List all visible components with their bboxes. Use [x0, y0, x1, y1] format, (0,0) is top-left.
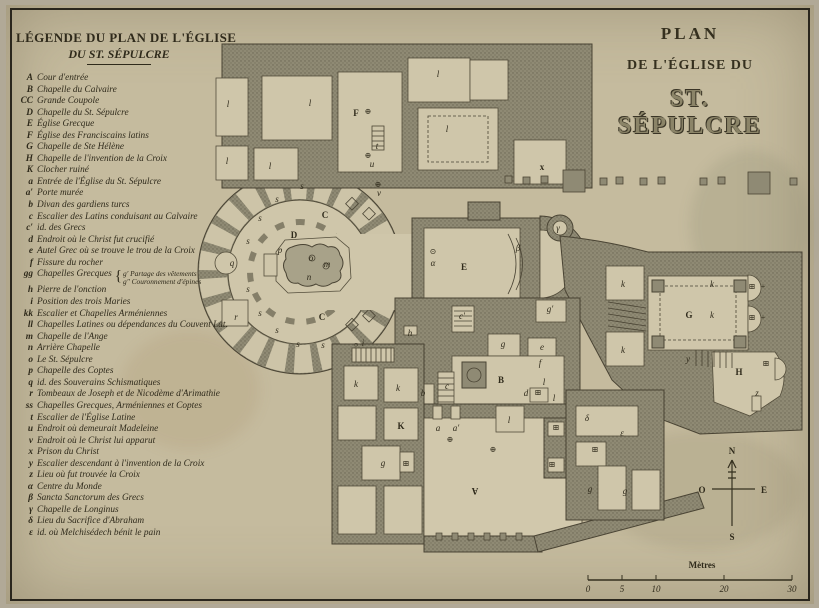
- legend-entry: a′ Porte murée: [16, 188, 222, 200]
- legend-entry-key: p: [16, 366, 33, 378]
- plan-label-s: s: [275, 194, 279, 204]
- legend-entry: p Chapelle des Coptes: [16, 366, 222, 378]
- compass-rose: N S O E: [698, 446, 767, 542]
- legend-entry: h Pierre de l'onction: [16, 285, 222, 297]
- scale-tick-label: 30: [787, 584, 798, 594]
- engraved-plan-page: ABCCDEFGHKxlllllllllsssssssssqrpomntuvhi…: [0, 0, 819, 608]
- plan-label-g: g: [381, 458, 386, 468]
- legend-entry-key: o: [16, 355, 33, 367]
- map-title-line2: DE L'ÉGLISE DU: [600, 58, 780, 74]
- legend-entry-text: Divan des gardiens turcs: [37, 200, 130, 212]
- legend-entry-key: d: [16, 235, 33, 247]
- legend-entry: e Autel Grec où se trouve le trou de la …: [16, 246, 222, 258]
- legend-entry-text: Fissure du rocher: [37, 258, 103, 270]
- legend-entry: E Église Grecque: [16, 119, 222, 131]
- plan-label-a: a: [436, 423, 441, 433]
- scale-tick-label: 10: [652, 584, 662, 594]
- courtyard: [424, 390, 704, 552]
- legend-entry-text: Escalier et Chapelles Arméniennes: [37, 309, 167, 321]
- legend-entry-text: Chapelles Grecques: [37, 269, 112, 281]
- legend-entry: u Endroit où demeurait Madeleine: [16, 424, 222, 436]
- legend-entries: A Cour d'entrée B Chapelle du Calvaire C…: [16, 73, 222, 540]
- legend-entry-key: f: [16, 258, 33, 270]
- map-title-line3: ST. SÉPULCRE: [600, 86, 780, 140]
- plan-label-g: g: [501, 339, 506, 349]
- legend-entry: ε id. où Melchisédech bénit le pain: [16, 528, 222, 540]
- north-range: [216, 44, 592, 188]
- legend-entry-text: Église des Franciscains latins: [37, 131, 149, 143]
- legend-entry-text: Chapelle du St. Sépulcre: [37, 108, 129, 120]
- legend-entry-key: F: [16, 131, 33, 143]
- stair-k-west: [352, 348, 394, 362]
- plan-label-m: m: [324, 259, 331, 269]
- legend-entry-text: Porte murée: [37, 188, 83, 200]
- legend-entry: d Endroit où le Christ fut crucifié: [16, 235, 222, 247]
- legend-entry-text: Le St. Sépulcre: [37, 355, 93, 367]
- legend-entry-text: Entrée de l'Église du St. Sépulcre: [37, 177, 161, 189]
- plan-label-⊞: ⊞: [535, 388, 542, 397]
- legend-entry: β Sancta Sanctorum des Grecs: [16, 493, 222, 505]
- legend-entry-text: id. où Melchisédech bénit le pain: [37, 528, 160, 540]
- plan-label-⊞: ⊞: [553, 423, 560, 432]
- plan-label-⊕: ⊕: [365, 151, 372, 160]
- legend-entry-key: q: [16, 378, 33, 390]
- legend-entry-text: id. des Souverains Schismatiques: [37, 378, 160, 390]
- scale-tick-label: 5: [620, 584, 625, 594]
- compass-e: E: [761, 485, 767, 495]
- legend-entry-text: Lieu du Sacrifice d'Abraham: [37, 516, 144, 528]
- plan-label-s: s: [246, 284, 250, 294]
- legend-entry-text: Chapelle de Ste Hélène: [37, 142, 124, 154]
- legend-entry: t Escalier de l'Église Latine: [16, 413, 222, 425]
- legend-entry-key: D: [16, 108, 33, 120]
- plan-label-x: x: [540, 162, 545, 172]
- legend-title-rule: [87, 64, 151, 65]
- legend-entry-text: Endroit où le Christ fut crucifié: [37, 235, 154, 247]
- legend-entry: m Chapelle de l'Ange: [16, 332, 222, 344]
- plan-label-C: C: [322, 210, 329, 220]
- legend-entry-key: c: [16, 212, 33, 224]
- legend-entry-key: b: [16, 200, 33, 212]
- legend-entry-key: e: [16, 246, 33, 258]
- legend-entry-text: Chapelle des Coptes: [37, 366, 113, 378]
- plan-label-g: g: [588, 484, 593, 494]
- plan-label-⊞: ⊞: [549, 460, 556, 469]
- legend-entry: y Escalier descendant à l'invention de l…: [16, 459, 222, 471]
- west-range: [332, 344, 424, 544]
- legend-entry-key: y: [16, 459, 33, 471]
- legend-entry-key: h: [16, 285, 33, 297]
- legend-entry: B Chapelle du Calvaire: [16, 85, 222, 97]
- plan-label-F: F: [353, 108, 359, 118]
- plan-label-s: s: [296, 339, 300, 349]
- legend-entry: r Tombeaux de Joseph et de Nicodème d'Ar…: [16, 389, 222, 401]
- legend-entry-key: v: [16, 436, 33, 448]
- plan-label-c′: c′: [459, 311, 466, 321]
- plan-label-H: H: [735, 367, 742, 377]
- legend-entry-text: Escalier des Latins conduisant au Calvai…: [37, 212, 198, 224]
- compass-n: N: [729, 446, 736, 456]
- plan-label-g′: g′: [547, 304, 555, 314]
- plan-label-b: b: [421, 388, 426, 398]
- legend-brace: {: [115, 269, 122, 283]
- legend-entry-text: Position des trois Maries: [37, 297, 130, 309]
- legend-entry-key: β: [16, 493, 33, 505]
- plan-label-+: +: [761, 282, 766, 291]
- plan-label-α: α: [431, 258, 436, 268]
- plan-label-s: s: [300, 181, 304, 191]
- plan-label-r: r: [234, 312, 238, 322]
- legend-entry-text: Chapelle de Longinus: [37, 505, 119, 517]
- legend-entry-text: id. des Grecs: [37, 223, 85, 235]
- plan-label-q: q: [230, 258, 235, 268]
- plan-label-s: s: [246, 236, 250, 246]
- plan-label-h: h: [408, 328, 413, 338]
- legend-entry-text: Clocher ruiné: [37, 165, 89, 177]
- plan-label-⊞: ⊞: [749, 313, 756, 322]
- legend-entry: A Cour d'entrée: [16, 73, 222, 85]
- plan-label-K: K: [397, 421, 404, 431]
- plan-label-D: D: [291, 230, 298, 240]
- plan-label-o: o: [309, 253, 314, 263]
- legend-entry-key: z: [16, 470, 33, 482]
- legend-entry: ss Chapelles Grecques, Arméniennes et Co…: [16, 401, 222, 413]
- legend-entry-text: Chapelles Latines ou dépendances du Couv…: [37, 320, 228, 332]
- legend-subtitle: DU ST. SÉPULCRE: [16, 47, 222, 62]
- legend-entry-text: Chapelles Grecques, Arméniennes et Copte…: [37, 401, 202, 413]
- plan-label-v: v: [377, 188, 381, 198]
- plan-label-⊞: ⊞: [749, 282, 756, 291]
- legend-entry: K Clocher ruiné: [16, 165, 222, 177]
- plan-label-y: y: [685, 354, 690, 364]
- scale-tick-label: 20: [720, 584, 730, 594]
- legend-entry: F Église des Franciscains latins: [16, 131, 222, 143]
- plan-label-d: d: [524, 388, 529, 398]
- legend-sub-entry: g″ Couronnement d'épines: [123, 278, 201, 286]
- legend-entry: b Divan des gardiens turcs: [16, 200, 222, 212]
- legend-entry: z Lieu où fut trouvée la Croix: [16, 470, 222, 482]
- legend-entry-key: H: [16, 154, 33, 166]
- plan-label-⊕: ⊕: [375, 180, 382, 189]
- plan-label-u: u: [370, 159, 375, 169]
- legend-entry-key: t: [16, 413, 33, 425]
- legend-entry-text: Tombeaux de Joseph et de Nicodème d'Arim…: [37, 389, 220, 401]
- legend-entry-text: Centre du Monde: [37, 482, 102, 494]
- legend-entry-text: Autel Grec où se trouve le trou de la Cr…: [37, 246, 195, 258]
- legend-entry: CC Grande Coupole: [16, 96, 222, 108]
- plan-label-n: n: [307, 272, 312, 282]
- plan-label-s: s: [258, 213, 262, 223]
- legend-entry-key: kk: [16, 309, 33, 321]
- legend-entry-text: Escalier descendant à l'invention de la …: [37, 459, 204, 471]
- legend-entry: v Endroit où le Christ lui apparut: [16, 436, 222, 448]
- legend-entry-key: B: [16, 85, 33, 97]
- plan-label-s: s: [321, 340, 325, 350]
- legend-entry: x Prison du Christ: [16, 447, 222, 459]
- plan-label-γ: γ: [556, 223, 560, 233]
- scale-bar: Mètres 05102030: [586, 560, 797, 594]
- plan-label-⊞: ⊞: [592, 445, 599, 454]
- plan-label-E: E: [461, 262, 467, 272]
- legend-entry: kk Escalier et Chapelles Arméniennes: [16, 309, 222, 321]
- legend-entry: α Centre du Monde: [16, 482, 222, 494]
- plan-label-○: ○: [354, 340, 359, 349]
- legend-sub-entries: g′ Partage des vêtementsg″ Couronnement …: [123, 269, 201, 285]
- legend-entry: γ Chapelle de Longinus: [16, 505, 222, 517]
- plan-label-⊞: ⊞: [763, 359, 770, 368]
- legend-entry-key: γ: [16, 505, 33, 517]
- plan-label-A: A: [471, 486, 478, 496]
- plan-label-z: z: [754, 388, 759, 398]
- legend-entry: gg Chapelles Grecques {g′ Partage des vê…: [16, 269, 222, 285]
- compass-s: S: [729, 532, 734, 542]
- legend-entry-text: Grande Coupole: [37, 96, 99, 108]
- legend-title: LÉGENDE DU PLAN DE L'ÉGLISE: [16, 30, 222, 46]
- plan-label-a′: a′: [453, 423, 461, 433]
- legend-entry-key: A: [16, 73, 33, 85]
- scale-tick-label: 0: [586, 584, 591, 594]
- legend-entry-text: Chapelle du Calvaire: [37, 85, 117, 97]
- legend-entry-text: Sancta Sanctorum des Grecs: [37, 493, 144, 505]
- plan-label-⊕: ⊕: [365, 107, 372, 116]
- legend-entry-key: r: [16, 389, 33, 401]
- legend-entry-key: K: [16, 165, 33, 177]
- legend-entry-text: Prison du Christ: [37, 447, 99, 459]
- map-title-line1: PLAN: [600, 24, 780, 44]
- plan-label-ε: ε: [620, 428, 624, 438]
- legend-entry-key: ss: [16, 401, 33, 413]
- plan-label-β: β: [515, 243, 521, 253]
- legend-entry-key: gg: [16, 269, 33, 281]
- legend-entry: G Chapelle de Ste Hélène: [16, 142, 222, 154]
- legend-entry-key: x: [16, 447, 33, 459]
- legend-entry-key: a′: [16, 188, 33, 200]
- legend-entry: q id. des Souverains Schismatiques: [16, 378, 222, 390]
- legend-entry-key: G: [16, 142, 33, 154]
- plan-label-c: c: [445, 381, 449, 391]
- legend-entry-key: ll: [16, 320, 33, 332]
- plan-label-p: p: [277, 245, 283, 255]
- legend-entry: a Entrée de l'Église du St. Sépulcre: [16, 177, 222, 189]
- legend-entry-key: ε: [16, 528, 33, 540]
- legend-entry-key: m: [16, 332, 33, 344]
- legend-entry-text: Escalier de l'Église Latine: [37, 413, 135, 425]
- legend-entry: n Arrière Chapelle: [16, 343, 222, 355]
- plan-label-⊕: ⊕: [447, 435, 454, 444]
- legend-entry-key: i: [16, 297, 33, 309]
- legend-entry-key: a: [16, 177, 33, 189]
- plan-label-g: g: [623, 486, 628, 496]
- legend-entry: D Chapelle du St. Sépulcre: [16, 108, 222, 120]
- legend-entry: c Escalier des Latins conduisant au Calv…: [16, 212, 222, 224]
- scale-unit-label: Mètres: [689, 560, 716, 570]
- legend-entry: ll Chapelles Latines ou dépendances du C…: [16, 320, 222, 332]
- legend-entry-text: Endroit où demeurait Madeleine: [37, 424, 158, 436]
- plan-label-⊙: ⊙: [430, 247, 437, 256]
- legend-entry: δ Lieu du Sacrifice d'Abraham: [16, 516, 222, 528]
- legend-entry-text: Lieu où fut trouvée la Croix: [37, 470, 140, 482]
- plan-label-s: s: [275, 325, 279, 335]
- plan-label-B: B: [498, 375, 504, 385]
- legend-entry-text: Cour d'entrée: [37, 73, 88, 85]
- legend-entry-key: CC: [16, 96, 33, 108]
- legend-entry-text: Arrière Chapelle: [37, 343, 100, 355]
- legend-entry-text: Endroit où le Christ lui apparut: [37, 436, 155, 448]
- legend-entry-key: c′: [16, 223, 33, 235]
- plan-label-C: C: [319, 312, 326, 322]
- plan-label-+: +: [761, 313, 766, 322]
- legend-entry-key: E: [16, 119, 33, 131]
- plan-label-e: e: [540, 342, 544, 352]
- legend-entry-text: Chapelle de l'invention de la Croix: [37, 154, 167, 166]
- map-title-block: PLAN DE L'ÉGLISE DU ST. SÉPULCRE: [600, 24, 780, 140]
- plan-label-⊞: ⊞: [403, 459, 410, 468]
- legend-entry: i Position des trois Maries: [16, 297, 222, 309]
- plan-label-G: G: [685, 310, 692, 320]
- legend-entry-key: u: [16, 424, 33, 436]
- plan-label-s: s: [258, 308, 262, 318]
- legend-entry: c′ id. des Grecs: [16, 223, 222, 235]
- legend-panel: LÉGENDE DU PLAN DE L'ÉGLISE DU ST. SÉPUL…: [16, 30, 222, 540]
- legend-entry-text: Église Grecque: [37, 119, 94, 131]
- compass-o: O: [698, 485, 705, 495]
- legend-entry-key: α: [16, 482, 33, 494]
- legend-entry-text: Pierre de l'onction: [37, 285, 106, 297]
- legend-entry: H Chapelle de l'invention de la Croix: [16, 154, 222, 166]
- legend-entry-key: n: [16, 343, 33, 355]
- plan-label-⊕: ⊕: [490, 445, 497, 454]
- legend-entry: o Le St. Sépulcre: [16, 355, 222, 367]
- legend-entry-text: Chapelle de l'Ange: [37, 332, 108, 344]
- legend-entry-key: δ: [16, 516, 33, 528]
